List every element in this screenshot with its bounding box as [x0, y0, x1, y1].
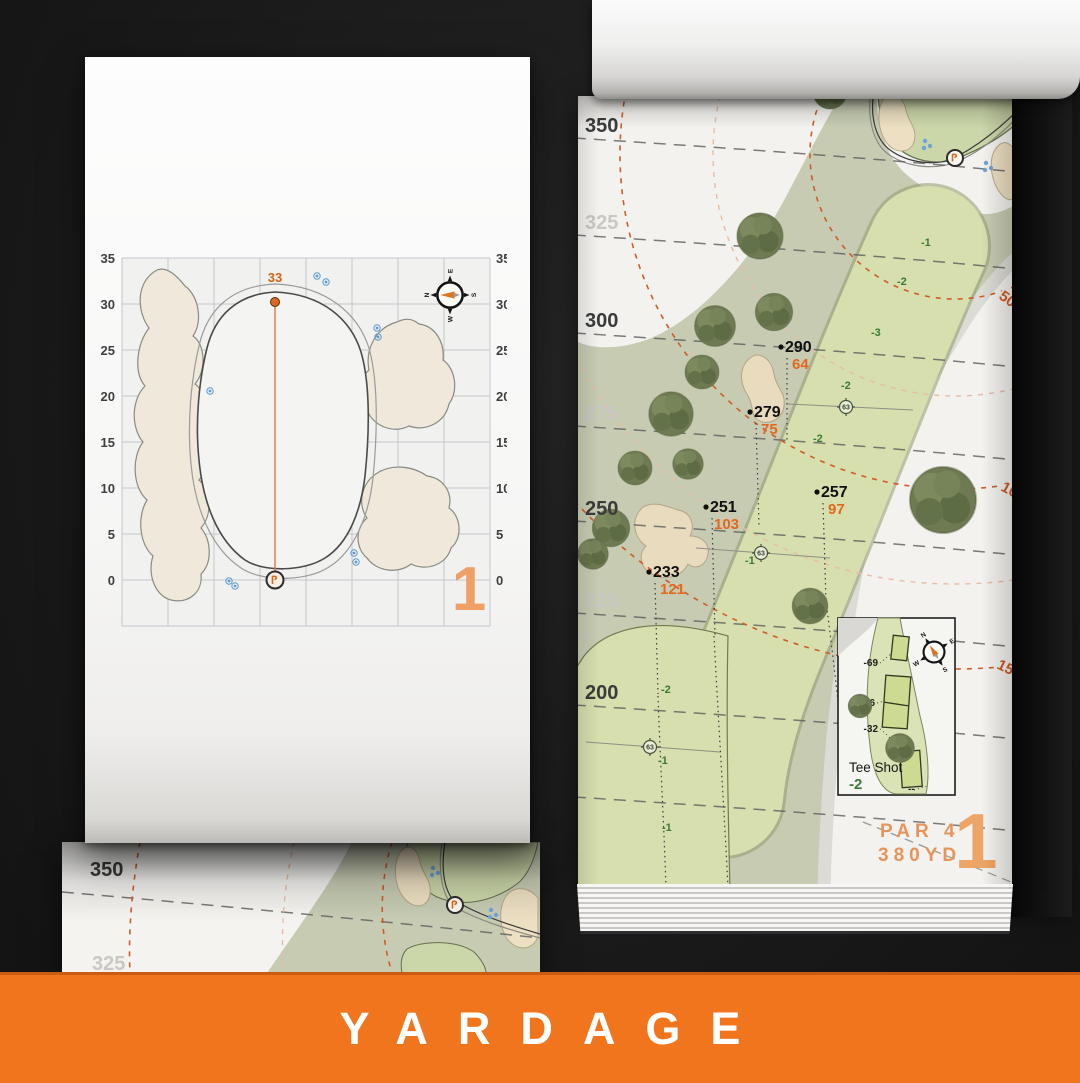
- left-under-page: 350 325: [62, 842, 540, 973]
- tee-elevation: -2: [849, 776, 862, 793]
- svg-text:20: 20: [101, 389, 115, 404]
- svg-text:290: 290: [785, 339, 812, 356]
- fairway-bottom: [578, 626, 730, 886]
- svg-text:279: 279: [754, 404, 781, 421]
- svg-text:25: 25: [496, 343, 507, 358]
- hole-number: 1: [452, 555, 486, 624]
- axis-labels-left: 35 30 25 20 15 10 5 0: [101, 252, 115, 588]
- axis-labels-right: 35 30 25 20 15 10 5 0: [496, 252, 507, 588]
- svg-text:-1: -1: [921, 237, 931, 249]
- svg-text:S: S: [471, 292, 478, 297]
- pin-dot: [271, 298, 280, 307]
- svg-text:121: 121: [660, 581, 685, 598]
- left-green-detail-page: 33 35 30 25 20 15 10 5 0: [85, 57, 530, 843]
- green-pin-marker: [947, 150, 963, 166]
- svg-text:233: 233: [653, 564, 680, 581]
- under-page-map-fragment: 350 325: [62, 842, 540, 973]
- pin-distance-label: 33: [268, 270, 282, 285]
- svg-text:-2: -2: [897, 276, 907, 288]
- svg-text:-2: -2: [661, 684, 671, 696]
- green-pin-marker: [447, 897, 463, 913]
- distance-label: 325: [92, 953, 125, 973]
- tee-shot-title: Tee Shot: [849, 760, 903, 775]
- banner-title: YARDAGE: [310, 1003, 771, 1055]
- svg-text:75: 75: [761, 421, 778, 438]
- svg-text:5: 5: [108, 527, 115, 542]
- svg-text:35: 35: [101, 252, 115, 266]
- svg-text:15: 15: [101, 435, 115, 450]
- svg-text:97: 97: [828, 501, 845, 518]
- par-label: PAR 4: [880, 821, 960, 842]
- svg-text:W: W: [448, 315, 455, 322]
- svg-text:64: 64: [792, 356, 809, 373]
- svg-text:-1: -1: [662, 822, 672, 834]
- hole-map: 63 63 63 -1 -2 -3 -2 -2 -1 -2 -1 -1: [578, 96, 1012, 886]
- svg-text:E: E: [448, 268, 455, 273]
- svg-text:10: 10: [101, 481, 115, 496]
- yardage-banner: YARDAGE: [0, 972, 1080, 1083]
- svg-text:15: 15: [496, 435, 507, 450]
- svg-text:251: 251: [710, 499, 737, 516]
- tee-shot-inset: -69 -46 -32 Tee Shot -2 -- N E S W: [838, 618, 967, 795]
- distance-label: 350: [90, 859, 123, 881]
- svg-text:-32: -32: [864, 724, 879, 735]
- hole-number: 1: [954, 797, 997, 885]
- front-marker: [267, 572, 284, 589]
- svg-text:250: 250: [585, 498, 618, 520]
- svg-text:N: N: [424, 292, 431, 297]
- svg-text:30: 30: [496, 297, 507, 312]
- svg-text:5: 5: [496, 527, 503, 542]
- svg-text:25: 25: [101, 343, 115, 358]
- svg-text:0: 0: [108, 573, 115, 588]
- svg-text:325: 325: [585, 212, 618, 234]
- svg-text:300: 300: [585, 310, 618, 332]
- svg-text:200: 200: [585, 682, 618, 704]
- svg-text:275: 275: [585, 403, 618, 425]
- green-detail-diagram: 33 35 30 25 20 15 10 5 0: [97, 252, 507, 632]
- svg-text:-69: -69: [864, 658, 879, 669]
- svg-text:10: 10: [496, 481, 507, 496]
- svg-text:--: --: [908, 784, 915, 795]
- svg-text:35: 35: [496, 252, 507, 266]
- svg-text:30: 30: [101, 297, 115, 312]
- svg-text:350: 350: [585, 115, 618, 137]
- svg-text:225: 225: [585, 590, 618, 612]
- svg-text:0: 0: [496, 573, 503, 588]
- svg-text:-3: -3: [871, 327, 881, 339]
- svg-text:257: 257: [821, 484, 848, 501]
- svg-text:20: 20: [496, 389, 507, 404]
- svg-text:63: 63: [842, 405, 850, 412]
- svg-text:-1: -1: [745, 555, 755, 567]
- svg-text:-2: -2: [841, 380, 851, 392]
- green-outline-inner: [197, 292, 368, 569]
- svg-text:103: 103: [714, 516, 739, 533]
- svg-text:63: 63: [646, 745, 654, 752]
- svg-text:-1: -1: [658, 755, 668, 767]
- right-hole-map-page: 63 63 63 -1 -2 -3 -2 -2 -1 -2 -1 -1: [578, 96, 1012, 886]
- right-book-cover: [1008, 55, 1072, 917]
- yardage-label: 380YD: [878, 845, 961, 866]
- svg-text:-2: -2: [813, 433, 823, 445]
- page-stack-edges: [577, 884, 1013, 934]
- svg-text:63: 63: [757, 551, 765, 558]
- flipped-page-curl: [592, 0, 1080, 99]
